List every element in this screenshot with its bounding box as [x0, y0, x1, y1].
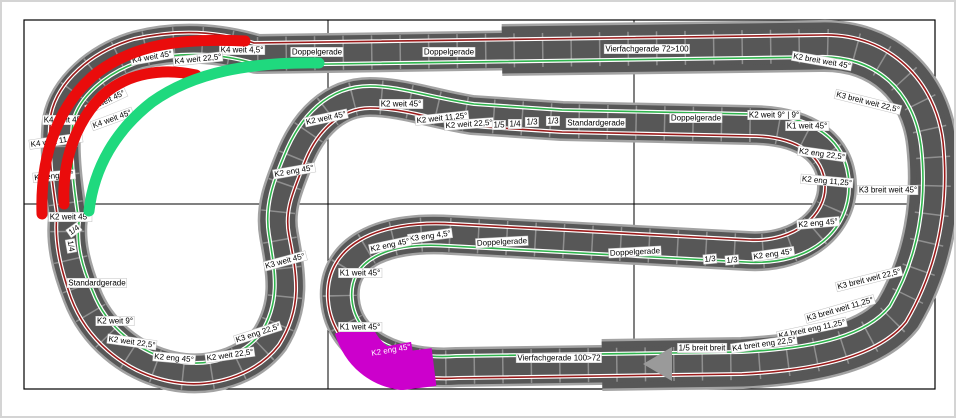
track-piece-label[interactable]: 1/5: [492, 121, 505, 130]
track-piece-label[interactable]: K2 eng 45°: [369, 236, 412, 253]
track-piece-label[interactable]: K4 breit eng 22,5°: [731, 335, 798, 353]
track-piece-label[interactable]: K1 weit 45°: [339, 269, 382, 278]
track-piece-label[interactable]: K2 weit 45°: [380, 100, 423, 109]
track-piece-label[interactable]: K2 eng 22,5°: [797, 146, 846, 162]
track-piece-label[interactable]: Doppelgerade: [291, 48, 343, 57]
track-piece-label[interactable]: K2 eng 45°: [752, 247, 795, 262]
track-piece-label[interactable]: K2 eng 45°: [370, 342, 413, 358]
track-piece-label[interactable]: K2 breit weit 45°: [792, 51, 853, 70]
track-piece-label[interactable]: K2 eng 45°: [797, 217, 839, 230]
track-piece-label[interactable]: K3 breit weit 22,5°: [834, 90, 901, 115]
label-layer: DoppelgeradeDoppelgeradeVierfachgerade 7…: [2, 2, 954, 416]
track-piece-label[interactable]: K2 weit 45°: [304, 109, 348, 127]
track-piece-label[interactable]: Vierfachgerade 100>72: [516, 354, 601, 363]
track-piece-label[interactable]: K3 eng 4,5°: [408, 228, 453, 243]
track-piece-label[interactable]: K2 eng 11,25°: [801, 174, 854, 188]
track-piece-label[interactable]: Doppelgerade: [609, 246, 662, 258]
track-piece-label[interactable]: K2 weit 9° | 9°: [748, 111, 800, 120]
track-piece-label[interactable]: K4 weit 22,5°: [173, 52, 223, 66]
track-piece-label[interactable]: 1/4: [508, 120, 521, 129]
track-piece-label[interactable]: K4 weit 4,5°: [220, 46, 265, 55]
track-piece-label[interactable]: Standardgerade: [67, 279, 126, 288]
track-piece-label[interactable]: K3 breit weit 45°: [858, 186, 918, 195]
track-piece-label[interactable]: 1/4: [65, 239, 76, 253]
track-piece-label[interactable]: K1 weit 45°: [786, 122, 829, 131]
track-piece-label[interactable]: 1/3: [525, 118, 538, 127]
track-piece-label[interactable]: Vierfachgerade 72>100: [604, 45, 689, 54]
track-piece-label[interactable]: 1/3: [546, 117, 559, 126]
page-frame: DoppelgeradeDoppelgeradeVierfachgerade 7…: [0, 0, 956, 418]
track-piece-label[interactable]: K4 weit 45°: [90, 107, 133, 130]
track-piece-label[interactable]: Doppelgerade: [423, 48, 475, 57]
track-piece-label[interactable]: 1/4: [66, 223, 82, 238]
track-piece-label[interactable]: Doppelgerade: [670, 114, 722, 123]
track-piece-label[interactable]: K2 weit 22,5°: [205, 347, 255, 363]
track-piece-label[interactable]: 1/5 breit breit: [678, 344, 727, 353]
track-piece-label[interactable]: K2 weit 45°: [49, 213, 92, 222]
track-piece-label[interactable]: 1/3: [703, 254, 717, 264]
track-piece-label[interactable]: K2 weit 22,5°: [444, 118, 494, 130]
track-piece-label[interactable]: Doppelgerade: [476, 236, 529, 248]
track-piece-label[interactable]: K4 weit 45°: [43, 116, 86, 125]
track-piece-label[interactable]: K3 eng 22,5°: [234, 321, 283, 345]
track-piece-label[interactable]: K2 weit 22,5°: [107, 334, 157, 350]
track-piece-label[interactable]: K4 weit 11,25°: [29, 133, 83, 149]
track-piece-label[interactable]: K2 eng 45°: [33, 170, 75, 183]
track-piece-label[interactable]: K4 weit 45°: [130, 49, 173, 65]
track-piece-label[interactable]: K3 weit 45°: [263, 251, 306, 271]
track-piece-label[interactable]: 1/3: [725, 255, 739, 265]
track-piece-label[interactable]: K2 eng 45°: [153, 352, 195, 365]
track-piece-label[interactable]: K1 weit 45°: [339, 323, 382, 332]
track-piece-label[interactable]: K2 eng 45°: [273, 163, 316, 179]
track-piece-label[interactable]: Standardgerade: [566, 119, 625, 128]
track-piece-label[interactable]: K2 weit 9°: [96, 317, 134, 326]
track-piece-label[interactable]: K3 breit weit 22,5°: [835, 267, 902, 292]
